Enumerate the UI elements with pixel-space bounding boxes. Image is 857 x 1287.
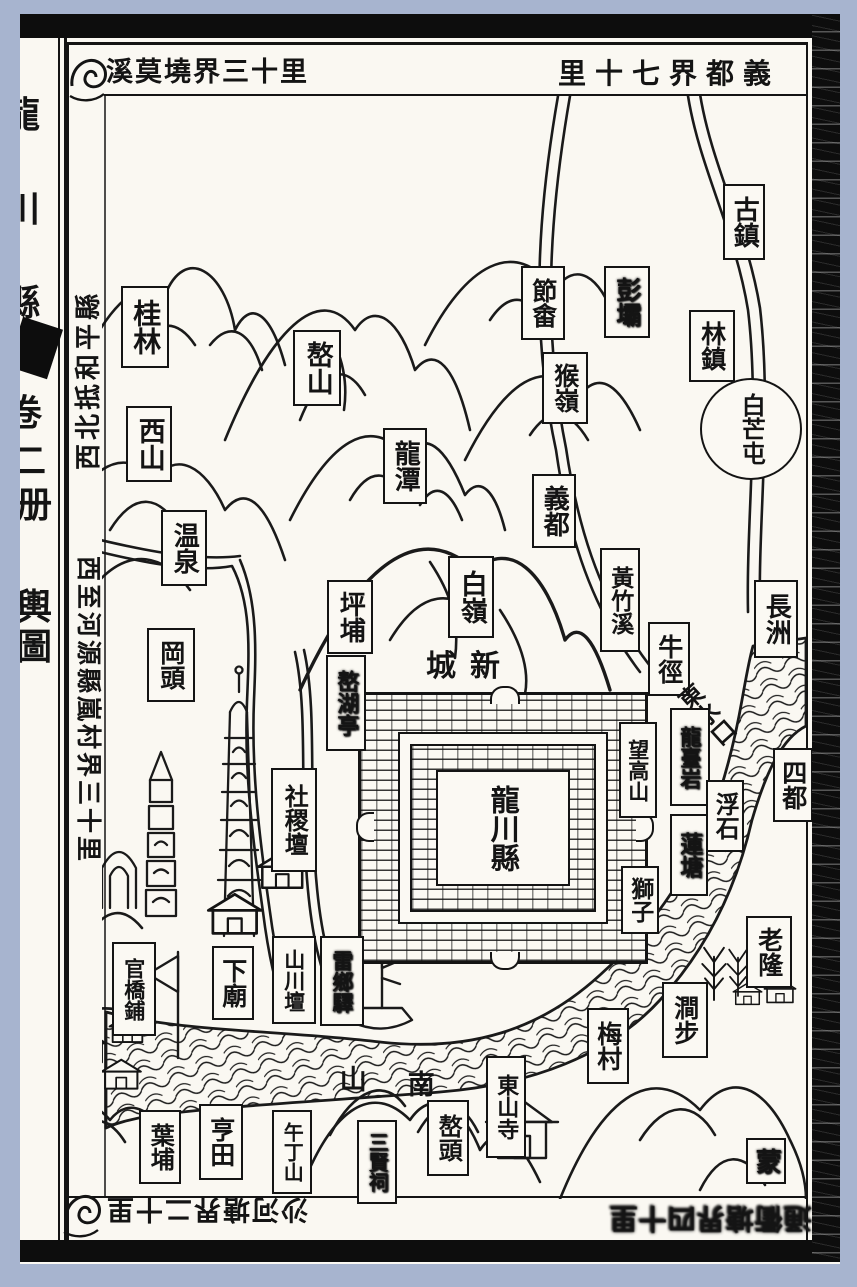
map-label-jianbu: 澗步 [662, 982, 708, 1058]
spine-char-ce: 册 [20, 476, 52, 528]
map-label-shejitan: 社稷壇 [271, 768, 317, 872]
map-label-liantang: 蓮塘 [670, 814, 708, 896]
spine-char-chuan: 川 [20, 180, 40, 232]
map-label-longtaiyan: 龍臺岩 [670, 708, 710, 806]
boundary-note-southwest: 沙河塘界二十里 [96, 1192, 308, 1231]
map-label-nan-char: 南 [404, 1066, 432, 1100]
map-label-guilin: 桂林 [121, 286, 169, 368]
spine-char-tu: 圖 [20, 618, 52, 670]
spine-char-long: 龍 [20, 86, 40, 138]
map-label-leixiangyi: 雷鄉驛 [320, 936, 364, 1026]
map-label-pengba: 彭壩 [604, 266, 650, 338]
map-label-dongshansi: 東山寺 [486, 1056, 526, 1158]
map-labels: 桂林西山嶅山龍潭節畬彭壩猴嶺古鎮林鎮白芒屯義都黃竹溪長洲温泉岡頭坪埔白嶺嶅湖亭牛… [0, 0, 857, 1287]
woodcut-frame-bottom [20, 1240, 840, 1262]
map-label-aotou: 嶅頭 [427, 1100, 469, 1176]
map-label-xincheng: 城新 [420, 648, 520, 686]
map-label-jieshe: 節畬 [521, 266, 565, 340]
spine-char-xian: 縣 [20, 274, 40, 326]
map-label-linzhen: 林鎮 [689, 310, 735, 382]
map-label-wanggaoshan: 望高山 [619, 722, 657, 818]
map-label-shan-char: 山 [336, 1062, 364, 1094]
map-label-shizi: 獅子 [621, 866, 659, 934]
woodcut-frame-top [20, 14, 840, 38]
map-label-baimangtun: 白芒屯 [700, 378, 802, 480]
map-label-laolong: 老隆 [746, 916, 792, 988]
map-label-guzhen: 古鎮 [723, 184, 765, 260]
map-label-meicun: 梅村 [587, 1008, 629, 1084]
boundary-note-west-top: 西北抵和平縣 [68, 114, 106, 470]
spine-char-juan: 卷 [20, 384, 42, 436]
book-spine: 龍川縣卷二册輿圖 [20, 38, 64, 1240]
map-label-xishan: 西山 [126, 406, 172, 482]
map-label-shanchuantan: 山川壇 [272, 936, 316, 1024]
map-label-hengtian: 亨田 [199, 1104, 243, 1180]
map-label-aohuting: 嶅湖亭 [326, 655, 366, 751]
map-label-aoshan: 嶅山 [293, 330, 341, 406]
map-label-bailing: 白嶺 [448, 556, 494, 638]
boundary-note-northeast: 里十七界都義 [558, 52, 784, 92]
map-label-gangtou: 岡頭 [147, 628, 195, 702]
map-label-huangzhuxi: 黃竹溪 [600, 548, 640, 652]
map-label-longtan: 龍潭 [383, 428, 427, 504]
woodcut-frame-right [812, 14, 840, 1262]
map-label-wudingshan: 午丁山 [272, 1110, 312, 1194]
map-label-sidu: 四都 [773, 748, 813, 822]
ink-blotch [20, 317, 63, 379]
map-label-pingbu: 坪埔 [327, 580, 373, 654]
gazetteer-map-page: { "palette": {"page_bg":"#a7b4cf","paper… [0, 0, 857, 1287]
map-label-xiamiao: 下廟 [212, 946, 254, 1020]
map-label-houling: 猴嶺 [542, 352, 588, 424]
map-label-sanxianci: 三賢祠 [357, 1120, 397, 1204]
map-label-wenquan: 温泉 [161, 510, 207, 586]
map-label-yidu: 義都 [532, 474, 576, 548]
boundary-note-southeast: 通衢塘界四十里 [598, 1200, 812, 1240]
boundary-note-northwest: 溪莫墝界三十里 [106, 50, 310, 89]
map-label-changzhou: 長洲 [754, 580, 798, 658]
map-label-meng: 蒙 [746, 1138, 786, 1184]
boundary-note-west-bottom: 西至河源縣嵐村界三十里 [70, 556, 108, 992]
map-label-fushi: 浮石 [706, 780, 744, 852]
map-label-guanqiaopu: 官橋鋪 [112, 942, 156, 1036]
map-label-yepu: 葉埔 [139, 1110, 181, 1184]
